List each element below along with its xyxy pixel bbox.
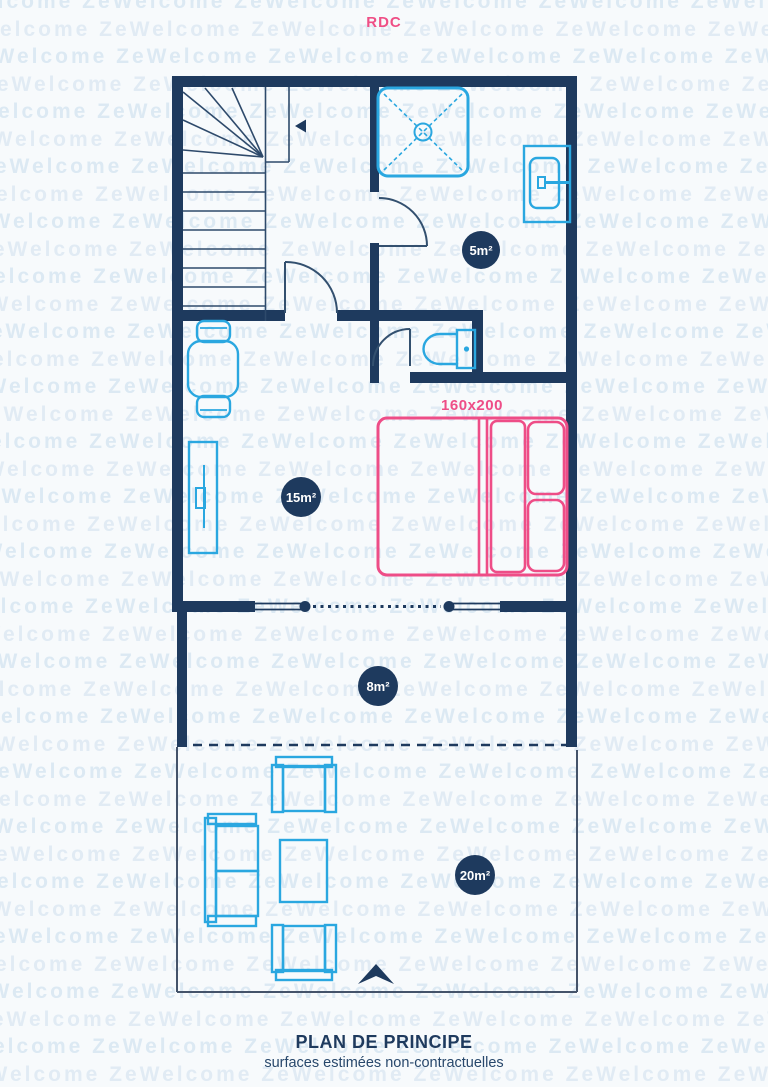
dining-chair-bottom (197, 396, 230, 417)
doors (285, 198, 427, 366)
bed-size-label: 160x200 (441, 397, 503, 414)
area-badge-terrace: 20m² (455, 855, 495, 895)
caption-title: PLAN DE PRINCIPE (0, 1032, 768, 1053)
washbasin (524, 146, 570, 222)
caption-subtitle: surfaces estimées non-contractuelles (0, 1055, 768, 1071)
walls (172, 76, 577, 747)
staircase (183, 87, 306, 321)
outdoor-armchair-top (272, 757, 336, 812)
wall-hall-left (183, 310, 285, 321)
outdoor-armchair-bottom (272, 925, 336, 980)
wall-wc-bottom-stub (370, 372, 379, 383)
stair-direction-arrow-icon (295, 120, 306, 133)
north-arrow-icon (358, 964, 394, 984)
area-badge-balcony: 8m² (358, 666, 398, 706)
wall-balcony-left (177, 612, 187, 747)
area-badge-bathroom: 5m² (462, 231, 500, 269)
wall-bath-bottom (410, 372, 577, 383)
bay-window-handle-right (444, 601, 455, 612)
bed-pillow-bottom (528, 500, 564, 571)
wall-bay-right (500, 601, 577, 612)
area-badge-bathroom-label: 5m² (469, 243, 493, 258)
caption: PLAN DE PRINCIPE surfaces estimées non-c… (0, 1032, 768, 1071)
wall-right (566, 76, 577, 747)
floor-title: RDC (0, 14, 768, 31)
dining-table (188, 341, 238, 397)
shower-drain-icon (415, 124, 432, 141)
toilet-bowl (424, 334, 457, 364)
bathroom-door (379, 198, 427, 246)
floor-plan: 160x200 5m² 15m² 8m² 20m² (0, 0, 768, 1087)
bay-window (255, 601, 500, 612)
bed-pillow-top (528, 422, 564, 494)
wall-top (172, 76, 577, 87)
wall-left (172, 76, 183, 612)
hall-door (285, 262, 337, 313)
shower (378, 88, 468, 176)
toilet (424, 330, 475, 368)
outdoor-sofa (205, 814, 258, 926)
dining-set (188, 321, 238, 417)
wall-bay-left (172, 601, 255, 612)
washbasin-tap-icon (538, 177, 545, 188)
wall-hall-right-wc-top (337, 310, 483, 321)
bay-window-handle-left (300, 601, 311, 612)
area-badge-terrace-label: 20m² (460, 868, 491, 883)
coffee-table (280, 840, 327, 902)
bed (378, 418, 567, 575)
area-badge-living-label: 15m² (286, 490, 317, 505)
area-badge-balcony-label: 8m² (366, 679, 390, 694)
terrace-boundary (177, 747, 577, 992)
dining-chair-top (197, 321, 230, 342)
area-badge-living: 15m² (281, 477, 321, 517)
toilet-flush-icon (464, 346, 469, 351)
kitchen-unit (189, 442, 217, 553)
